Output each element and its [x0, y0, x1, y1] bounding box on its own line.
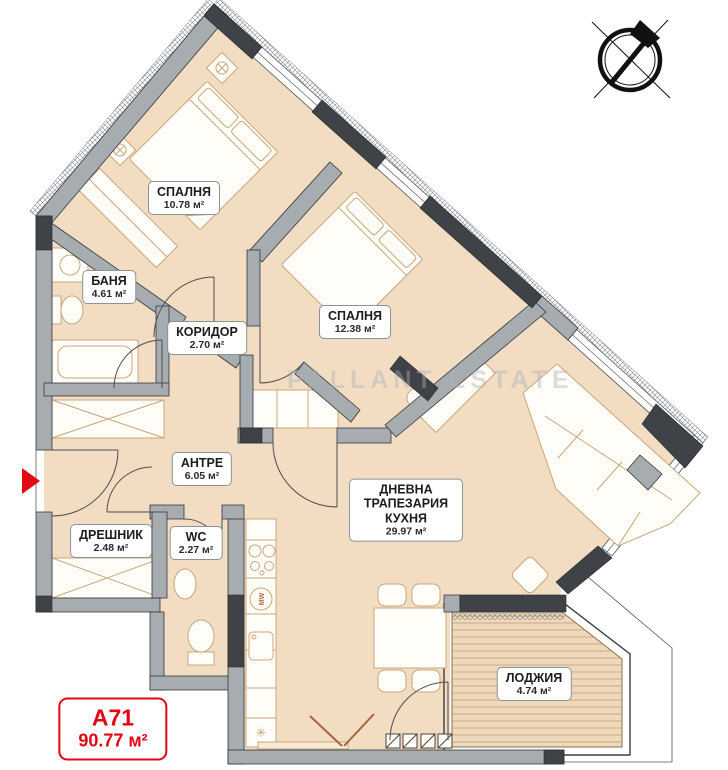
bathroom-toilet-icon	[52, 296, 83, 324]
room-name: ДРЕШНИК	[79, 528, 143, 542]
room-name: WC	[179, 530, 214, 544]
room-area: 4.61 м²	[91, 288, 127, 301]
microwave-label: MW	[259, 592, 266, 605]
room-name: СПАЛНЯ	[157, 185, 211, 199]
room-name: БАНЯ	[91, 274, 127, 288]
room-label-bedroom-1: СПАЛНЯ 10.78 м²	[148, 181, 220, 215]
bathtub-icon	[52, 340, 138, 384]
loggia-hatch-strip	[452, 613, 564, 620]
room-label-bathroom: БАНЯ 4.61 м²	[82, 270, 136, 304]
room-name: КОРИДОР	[176, 325, 238, 339]
wc-sink-icon	[174, 569, 196, 599]
room-label-living-dining-kitchen: ДНЕВНА ТРАПЕЗАРИЯ КУХНЯ 29.97 м²	[349, 479, 463, 542]
hob-symbol: ✳	[256, 725, 267, 740]
room-area: 12.38 м²	[328, 323, 382, 336]
floorplan-page: MW ✳	[0, 0, 728, 770]
room-name: СПАЛНЯ	[328, 309, 382, 323]
closet-wardrobe-icon	[52, 558, 162, 598]
kitchen-counter-icon: MW ✳	[246, 519, 276, 747]
room-label-bedroom-2: СПАЛНЯ 12.38 м²	[319, 305, 391, 339]
unit-badge: A71 90.77 м²	[58, 698, 167, 761]
compass-north-icon	[592, 20, 670, 98]
room-area: 2.48 м²	[79, 542, 143, 555]
unit-total-area: 90.77 м²	[78, 731, 147, 752]
room-area: 6.05 м²	[181, 470, 223, 483]
room-name: АНТРЕ	[181, 456, 223, 470]
closet-wardrobe-icon	[52, 400, 164, 438]
room-area: 29.97 м²	[358, 526, 454, 539]
room-name: ДНЕВНА ТРАПЕЗАРИЯ КУХНЯ	[358, 483, 454, 526]
entrance-arrow-icon	[22, 468, 40, 494]
room-label-loggia: ЛОДЖИЯ 4.74 м²	[497, 667, 572, 701]
room-area: 2.27 м²	[179, 544, 214, 557]
unit-code: A71	[78, 706, 147, 731]
room-area: 2.70 м²	[176, 339, 238, 352]
room-label-closet: ДРЕШНИК 2.48 м²	[70, 524, 152, 558]
room-name: ЛОДЖИЯ	[506, 671, 563, 685]
room-label-wc: WC 2.27 м²	[170, 526, 223, 560]
wc-toilet-icon	[188, 620, 214, 665]
room-label-entry-hall: АНТРЕ 6.05 м²	[172, 452, 232, 486]
floor-plan-drawing: MW ✳	[0, 0, 728, 770]
room-area: 10.78 м²	[157, 199, 211, 212]
room-label-corridor: КОРИДОР 2.70 м²	[167, 321, 247, 355]
room-area: 4.74 м²	[506, 685, 563, 698]
